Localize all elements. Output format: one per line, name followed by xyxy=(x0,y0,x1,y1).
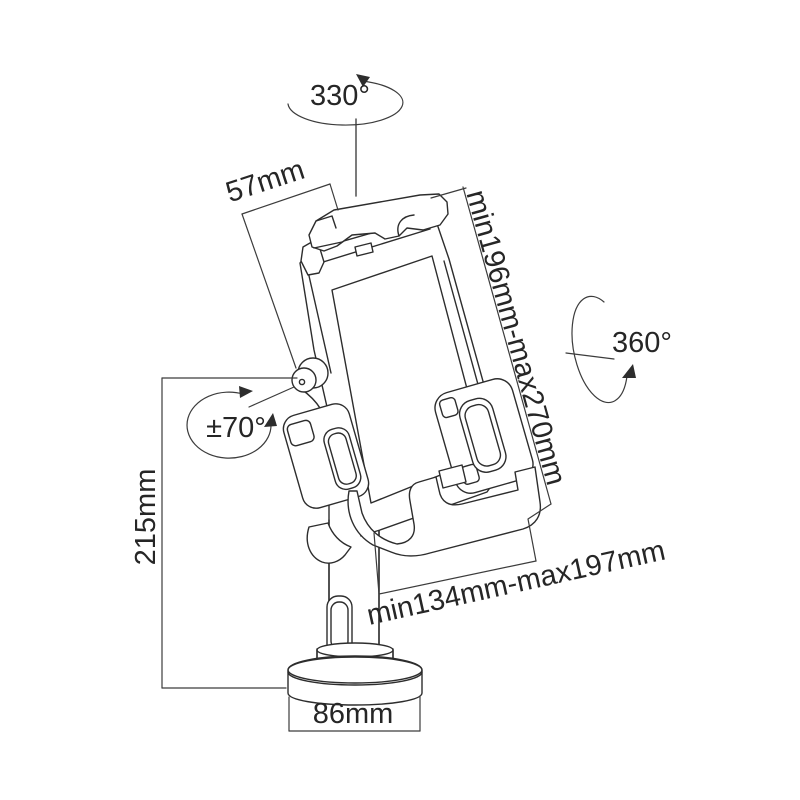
label-pole-height: 215mm xyxy=(130,469,162,566)
label-swivel: 360° xyxy=(612,327,672,359)
label-clamp-depth: 57mm xyxy=(222,154,309,209)
dim-tilt-range: ±70° xyxy=(187,386,294,458)
pole-slot-inner xyxy=(331,602,348,649)
label-rotation-top: 330° xyxy=(310,80,370,112)
tilt-arrowhead-right xyxy=(264,413,277,427)
swivel-arrowhead xyxy=(622,364,636,378)
collar-top xyxy=(317,643,393,657)
pivot-screw xyxy=(299,379,304,384)
clamp-depth-ext-left xyxy=(242,214,296,368)
label-base-diameter: 86mm xyxy=(313,698,394,730)
dim-swivel-rotation: 360° xyxy=(566,296,672,402)
swivel-leader-line xyxy=(566,353,614,359)
tilt-arrowhead-top xyxy=(239,386,253,398)
tilt-leader-line xyxy=(249,387,294,407)
tablet-stand-dimension-diagram: 330° 57mm min196mm-max270mm 360° xyxy=(0,0,800,800)
clamp-depth-ext-right xyxy=(330,184,338,210)
diagram-canvas: 330° 57mm min196mm-max270mm 360° xyxy=(0,0,800,800)
label-tilt: ±70° xyxy=(206,412,266,444)
